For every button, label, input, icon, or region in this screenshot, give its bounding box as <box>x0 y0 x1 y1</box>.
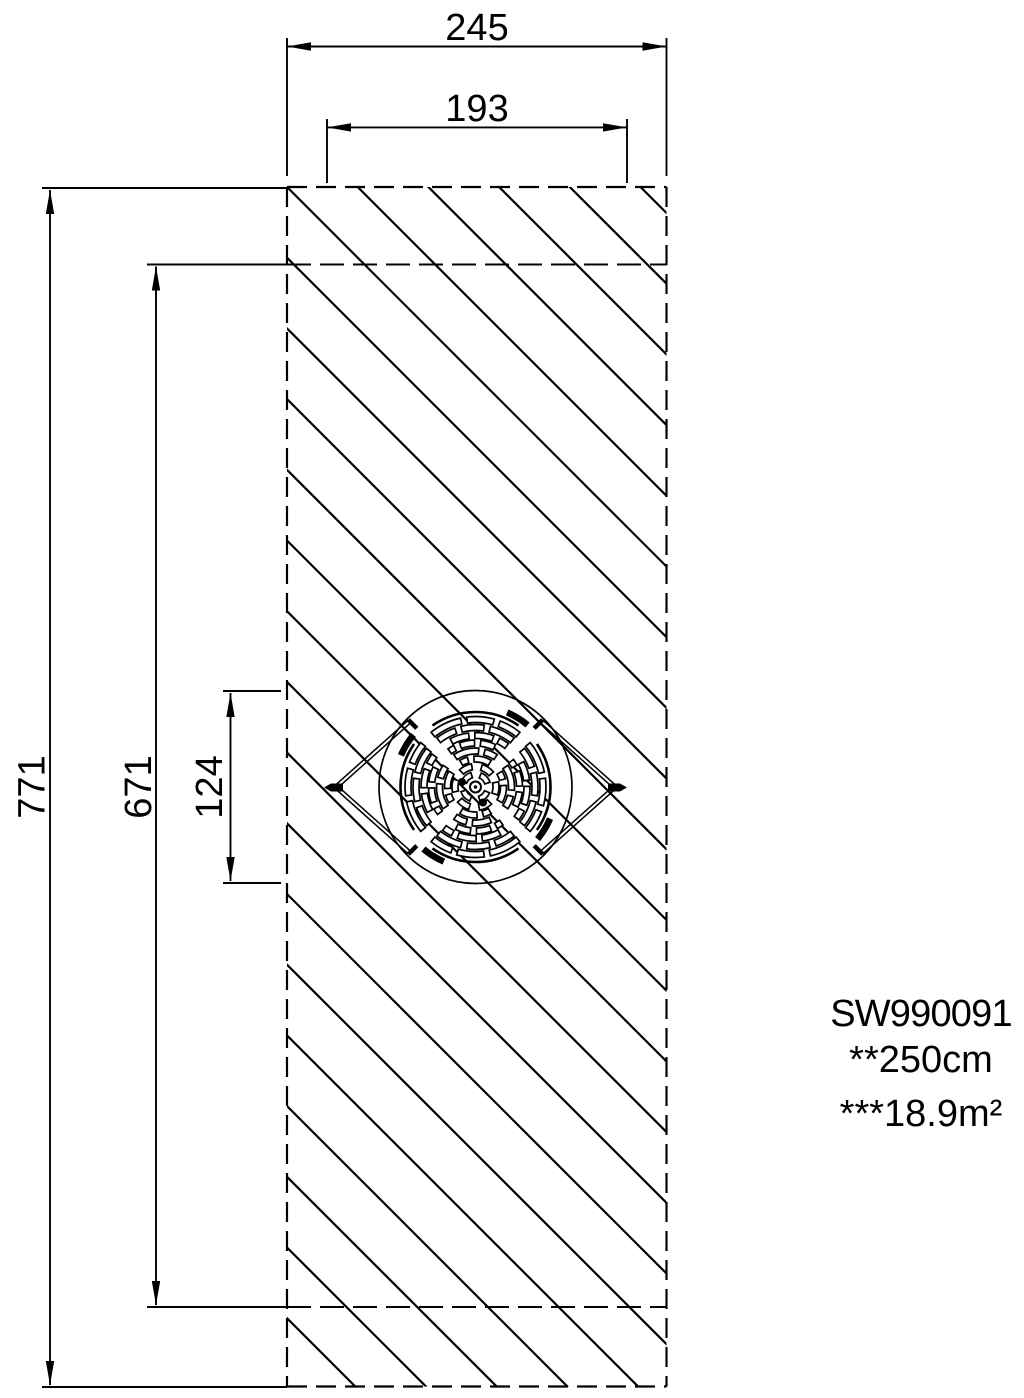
svg-text:245: 245 <box>445 7 508 49</box>
svg-text:671: 671 <box>118 755 160 818</box>
svg-text:**250cm: **250cm <box>849 1039 993 1081</box>
svg-text:124: 124 <box>189 755 231 818</box>
svg-text:SW990091: SW990091 <box>830 993 1012 1035</box>
svg-text:***18.9m²: ***18.9m² <box>840 1093 1003 1135</box>
svg-text:771: 771 <box>12 755 54 818</box>
svg-text:193: 193 <box>445 88 508 130</box>
